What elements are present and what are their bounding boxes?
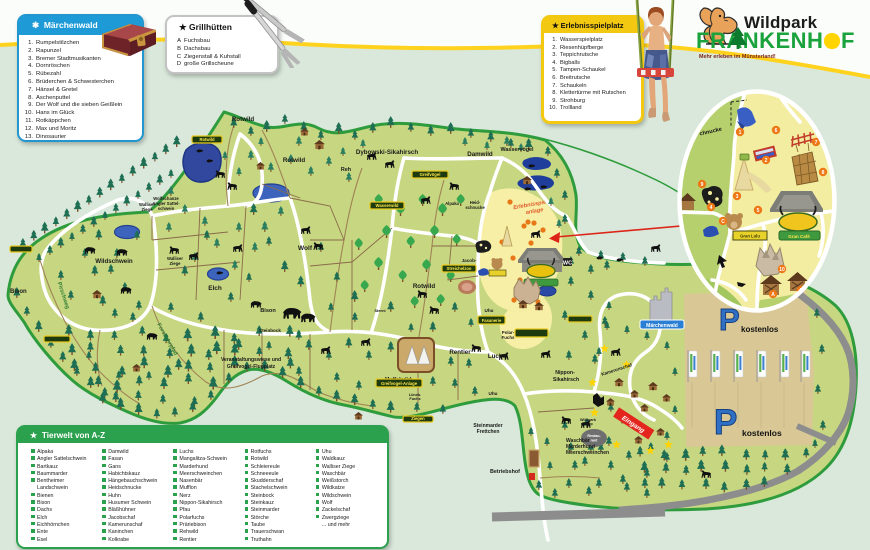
- svg-text:Luchs: Luchs: [488, 353, 507, 360]
- svg-text:10: 10: [779, 267, 785, 273]
- svg-text:Bison: Bison: [10, 289, 27, 295]
- svg-text:Bison: Bison: [260, 308, 276, 314]
- svg-text:kostenlos: kostenlos: [742, 428, 782, 438]
- svg-text:Uhu: Uhu: [485, 308, 494, 313]
- svg-text:Alpaka: Alpaka: [445, 201, 459, 206]
- svg-text:Fasanerie: Fasanerie: [482, 318, 502, 323]
- svg-text:Meerschweinchen: Meerschweinchen: [566, 450, 609, 456]
- svg-text:C: C: [721, 219, 725, 225]
- svg-text:Shop: Shop: [583, 422, 593, 426]
- svg-text:Wolf: Wolf: [298, 245, 313, 252]
- svg-text:Fuchs: Fuchs: [409, 397, 420, 401]
- svg-text:Ziege: Ziege: [170, 261, 182, 266]
- svg-text:Jacob-: Jacob-: [462, 258, 477, 263]
- svg-text:Streichelzoo: Streichelzoo: [447, 266, 472, 271]
- svg-text:Rotwild: Rotwild: [283, 157, 306, 164]
- svg-text:Greifvogel-Flugplatz: Greifvogel-Flugplatz: [227, 364, 276, 370]
- svg-text:Rotwild: Rotwild: [413, 283, 436, 290]
- svg-text:Frettchen: Frettchen: [477, 429, 500, 435]
- svg-text:Gran Lulu: Gran Lulu: [740, 234, 760, 239]
- svg-text:Betriebshof: Betriebshof: [490, 469, 520, 475]
- svg-text:9: 9: [701, 182, 704, 188]
- svg-text:Gran Café: Gran Café: [788, 234, 810, 239]
- svg-text:Dybowski-Sikahirsch: Dybowski-Sikahirsch: [356, 149, 418, 156]
- svg-text:Rotwild: Rotwild: [232, 116, 255, 123]
- svg-text:Märchenwald: Märchenwald: [646, 323, 678, 329]
- svg-text:Steinbock: Steinbock: [259, 328, 281, 333]
- svg-text:Veranstaltungswiese und: Veranstaltungswiese und: [221, 357, 281, 363]
- svg-text:Ziegen: Ziegen: [411, 416, 425, 421]
- svg-text:Fuchs: Fuchs: [502, 335, 515, 340]
- svg-text:6: 6: [775, 128, 778, 134]
- svg-text:Sterni: Sterni: [374, 308, 385, 313]
- svg-text:1: 1: [739, 130, 742, 136]
- svg-text:Elch: Elch: [208, 285, 222, 292]
- svg-text:Wasservögel: Wasservögel: [500, 147, 534, 153]
- svg-text:8: 8: [822, 170, 825, 176]
- svg-text:Greifvögel: Greifvögel: [420, 172, 441, 177]
- svg-text:Sikahirsch: Sikahirsch: [553, 377, 579, 383]
- svg-text:Wasserwild: Wasserwild: [376, 203, 399, 208]
- svg-text:4: 4: [710, 205, 713, 211]
- svg-text:Reh: Reh: [341, 167, 351, 173]
- svg-text:3: 3: [736, 194, 739, 200]
- svg-text:WC: WC: [563, 261, 572, 267]
- svg-text:schnucke: schnucke: [465, 205, 485, 210]
- svg-text:Rotwild: Rotwild: [199, 137, 215, 142]
- svg-text:Uhu: Uhu: [489, 391, 498, 396]
- svg-text:A: A: [771, 292, 775, 298]
- svg-text:7: 7: [815, 140, 818, 146]
- svg-text:Ziege: Ziege: [142, 207, 154, 212]
- svg-text:Nippon-: Nippon-: [555, 370, 575, 376]
- svg-text:schwein: schwein: [158, 206, 175, 211]
- svg-text:5: 5: [757, 208, 760, 214]
- svg-text:Rentier: Rentier: [449, 349, 471, 356]
- svg-text:Damwild: Damwild: [467, 151, 493, 158]
- svg-text:2: 2: [765, 158, 768, 164]
- svg-text:Greifvogel-Anlage: Greifvogel-Anlage: [381, 381, 418, 386]
- svg-text:rant: rant: [591, 439, 599, 443]
- svg-text:P: P: [714, 403, 737, 442]
- svg-text:kostenlos: kostenlos: [741, 325, 779, 334]
- svg-text:Wildschwein: Wildschwein: [95, 258, 133, 265]
